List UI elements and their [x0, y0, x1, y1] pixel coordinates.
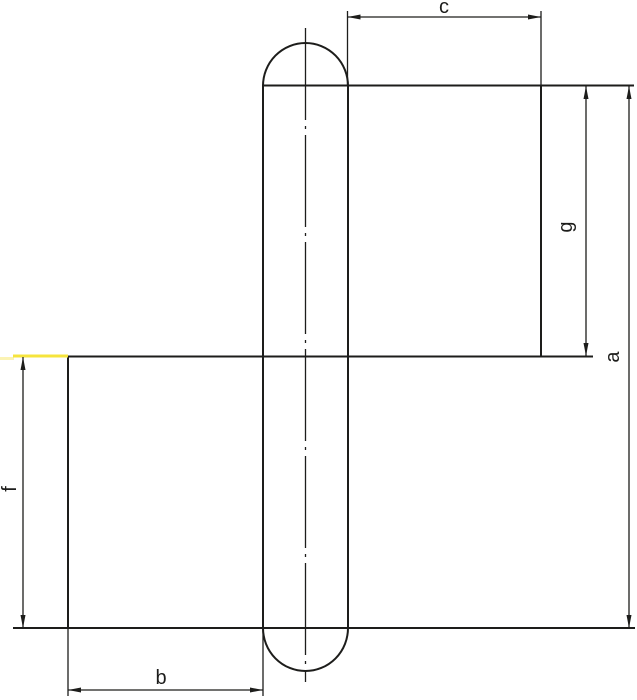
dimension-b-arrow-left: [68, 688, 81, 693]
dimension-g: g: [555, 86, 589, 356]
dimension-a-arrow-top: [627, 86, 632, 99]
highlight-group: [0, 356, 68, 359]
technical-drawing: c g a f b: [0, 0, 637, 700]
dimension-b: b: [68, 628, 263, 696]
dimension-b-arrow-right: [250, 688, 263, 693]
dimension-a-label: a: [602, 351, 624, 363]
hinge-outline: [13, 43, 635, 671]
dimension-g-label: g: [555, 221, 577, 232]
dimension-a-arrow-bottom: [627, 615, 632, 628]
dimension-a: a: [602, 86, 632, 628]
dimension-c-arrow-left: [348, 15, 361, 20]
dimension-f-arrow-bottom: [21, 615, 26, 628]
drawing-canvas: c g a f b: [0, 0, 637, 700]
dimension-c: c: [348, 0, 542, 85]
dimension-c-label: c: [439, 0, 449, 18]
dimension-f: f: [0, 357, 26, 628]
dimension-g-arrow-bottom: [584, 343, 589, 356]
dimension-f-arrow-top: [21, 357, 26, 370]
dimension-c-arrow-right: [528, 15, 541, 20]
dimension-g-arrow-top: [584, 86, 589, 99]
dimension-f-label: f: [0, 486, 21, 492]
dimension-b-label: b: [155, 667, 166, 689]
